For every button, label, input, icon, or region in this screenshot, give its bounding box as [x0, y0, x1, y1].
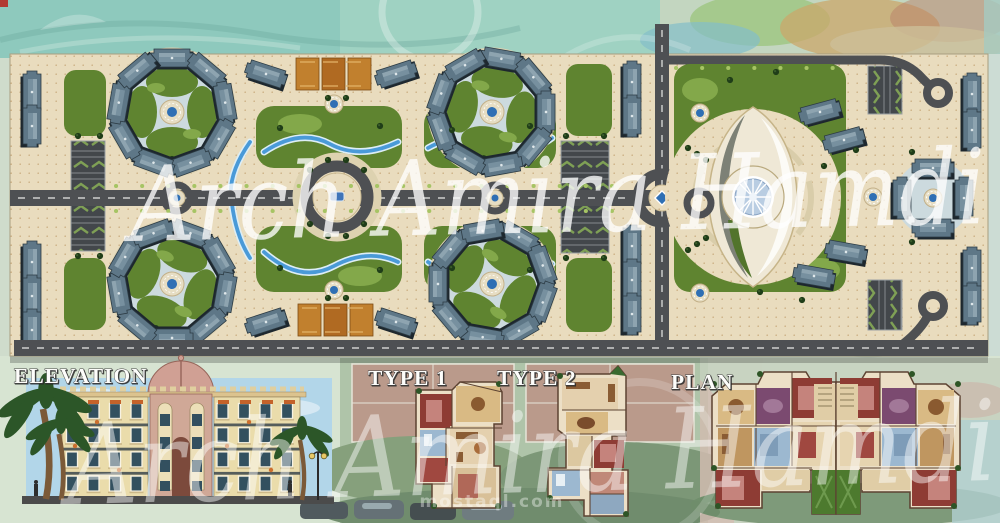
label-type2: TYPE 2 — [497, 366, 576, 390]
board-canvas: Arch Amira Hamdi Arch Amira Hamdi mostaq… — [0, 0, 1000, 523]
cul-de-sac-bottom — [922, 295, 944, 317]
label-plan: PLAN — [671, 370, 734, 394]
label-elevation: ELEVATION — [14, 364, 148, 388]
watermark-site: mostaql.com — [419, 492, 564, 512]
presentation-board: Arch Amira Hamdi Arch Amira Hamdi mostaq… — [0, 0, 1000, 523]
label-type1: TYPE 1 — [368, 366, 447, 390]
watermark-artist-main: Arch Amira Hamdi — [122, 126, 987, 266]
cul-de-sac-top — [927, 82, 949, 104]
